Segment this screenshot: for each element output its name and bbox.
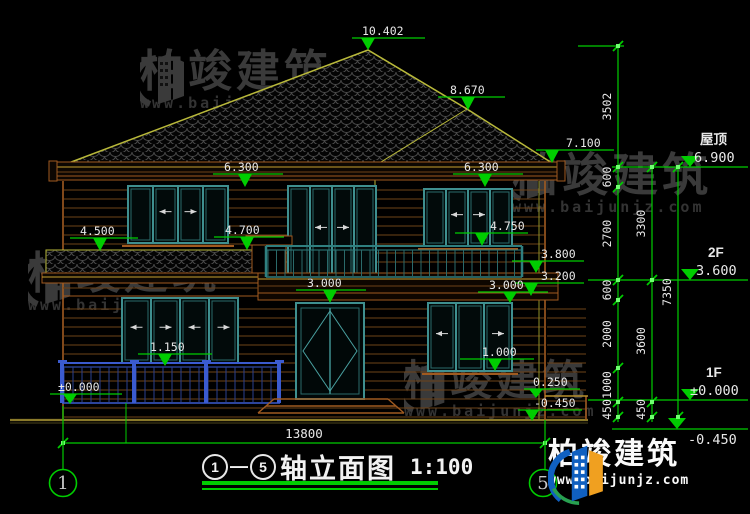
main-roof <box>66 50 552 164</box>
brand-logo: 柏竣建筑 www.baijunjz.com <box>548 440 689 487</box>
title-axis-end: 5 <box>250 454 276 480</box>
title-underline <box>202 488 438 490</box>
svg-text:13800: 13800 <box>285 426 323 441</box>
title-underline <box>202 481 438 485</box>
svg-text:-0.450: -0.450 <box>688 432 737 448</box>
level-marker: 屋顶6.900 <box>612 132 748 167</box>
dimension-chain: 33003600450 <box>634 162 657 422</box>
svg-text:3.000: 3.000 <box>489 278 524 292</box>
svg-text:2F: 2F <box>708 245 724 260</box>
balcony-door-2f <box>288 186 376 278</box>
svg-text:3.000: 3.000 <box>307 276 342 290</box>
svg-text:4.700: 4.700 <box>225 223 260 237</box>
svg-text:2700: 2700 <box>600 220 614 248</box>
svg-text:3300: 3300 <box>634 210 648 238</box>
cad-elevation-screenshot: 柏竣建筑 www.baijunjz.com 柏竣建筑 www.baijunjz.… <box>0 0 750 514</box>
svg-text:10.402: 10.402 <box>362 24 404 38</box>
svg-text:6.300: 6.300 <box>464 160 499 174</box>
dimension-chain: 3502600270060020001000450 <box>600 41 623 422</box>
svg-text:3502: 3502 <box>600 93 614 121</box>
elevation-marker: 7.100 <box>536 136 614 163</box>
svg-text:屋顶: 屋顶 <box>700 132 728 147</box>
svg-text:600: 600 <box>600 167 614 188</box>
level-marker: 2F3.600 <box>588 245 748 280</box>
axis-bubble-1-label: 1 <box>57 473 68 494</box>
svg-text:8.670: 8.670 <box>450 83 485 97</box>
svg-text:7350: 7350 <box>660 278 674 306</box>
window-1f-right <box>422 303 518 374</box>
svg-text:6.900: 6.900 <box>694 150 735 166</box>
elevation-drawing: 10.4028.6707.1006.3006.3004.5004.7004.75… <box>0 0 750 514</box>
svg-text:3.600: 3.600 <box>696 263 737 279</box>
svg-text:-0.450: -0.450 <box>534 396 576 410</box>
svg-text:450: 450 <box>600 399 614 420</box>
title-dash: — <box>230 456 248 477</box>
svg-text:3.800: 3.800 <box>541 247 576 261</box>
svg-text:1.000: 1.000 <box>482 345 517 359</box>
porch-skirt-roof <box>42 250 266 283</box>
dimension-chain: 7350 <box>660 162 683 422</box>
brand-logo-icon <box>548 440 612 506</box>
svg-text:4.500: 4.500 <box>80 224 115 238</box>
title-axis-start: 1 <box>202 454 228 480</box>
svg-text:±0.000: ±0.000 <box>690 383 739 399</box>
ground-line <box>10 420 588 423</box>
svg-text:4.750: 4.750 <box>490 219 525 233</box>
svg-text:1.150: 1.150 <box>150 340 185 354</box>
svg-text:3.200: 3.200 <box>541 269 576 283</box>
svg-text:3600: 3600 <box>634 327 648 355</box>
svg-text:600: 600 <box>600 280 614 301</box>
svg-text:2000: 2000 <box>600 320 614 348</box>
elevation-marker: 10.402 <box>352 24 425 50</box>
svg-text:1F: 1F <box>706 365 722 380</box>
elevation-marker: 0.250 <box>524 375 580 398</box>
svg-text:6.300: 6.300 <box>224 160 259 174</box>
svg-text:450: 450 <box>634 399 648 420</box>
svg-text:7.100: 7.100 <box>566 136 601 150</box>
bottom-dimension: 13800 <box>58 403 550 448</box>
svg-text:1000: 1000 <box>600 371 614 399</box>
axis-bubble-5-label: 5 <box>537 473 548 494</box>
svg-text:±0.000: ±0.000 <box>58 380 100 394</box>
title-scale: 1:100 <box>410 455 473 479</box>
svg-text:0.250: 0.250 <box>533 375 568 389</box>
entrance-door <box>296 303 364 399</box>
